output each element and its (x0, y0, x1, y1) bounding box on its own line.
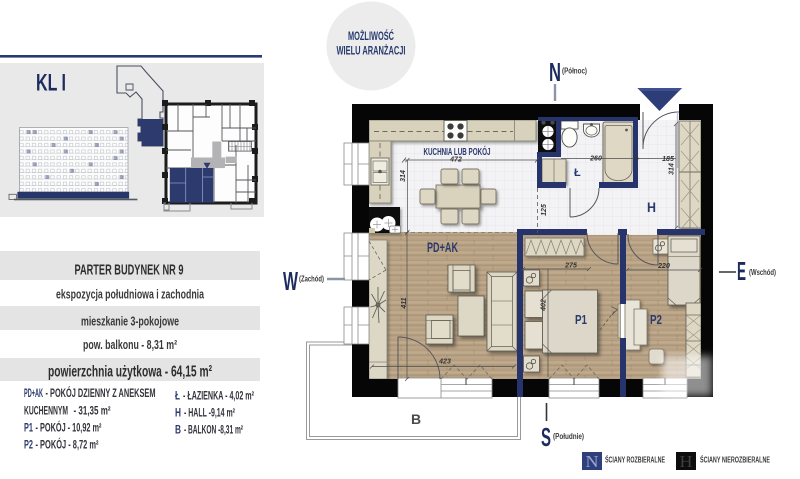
svg-text:WIELU ARANŻACJI: WIELU ARANŻACJI (337, 43, 406, 58)
svg-text:P1- POKÓJ - 10,92 m²: P1- POKÓJ - 10,92 m² (24, 420, 102, 435)
svg-text:B: B (411, 411, 421, 427)
svg-text:B- BALKON -8,31 m²: B- BALKON -8,31 m² (175, 423, 243, 437)
svg-text:(Północ): (Północ) (562, 67, 587, 76)
svg-text:P2- POKÓJ - 8,72 m²: P2- POKÓJ - 8,72 m² (24, 437, 99, 452)
svg-text:402: 402 (541, 299, 548, 312)
svg-text:423: 423 (438, 359, 451, 366)
svg-text:N: N (549, 57, 561, 87)
svg-text:314: 314 (669, 163, 676, 175)
svg-text:H: H (680, 452, 693, 471)
svg-text:125: 125 (541, 204, 548, 216)
svg-text:185: 185 (662, 156, 674, 163)
svg-text:H: H (647, 199, 656, 215)
svg-text:ŚCIANY NIEROZBIERALNE: ŚCIANY NIEROZBIERALNE (700, 456, 770, 465)
svg-text:H- HALL -9,14 m²: H- HALL -9,14 m² (175, 406, 235, 420)
svg-text:PARTER BUDYNEK NR 9: PARTER BUDYNEK NR 9 (75, 262, 184, 279)
svg-text:KUCHENNYM- 31,35 m²: KUCHENNYM- 31,35 m² (24, 404, 111, 418)
svg-text:260: 260 (589, 156, 602, 163)
svg-text:N: N (586, 452, 599, 471)
svg-text:pow. balkonu - 8,31 m²: pow. balkonu - 8,31 m² (83, 337, 177, 352)
svg-text:ekspozycja południowa i zachod: ekspozycja południowa i zachodnia (56, 287, 205, 302)
svg-text:S: S (541, 422, 551, 452)
svg-text:Ł- ŁAZIENKA - 4,02 m²: Ł- ŁAZIENKA - 4,02 m² (175, 389, 254, 403)
svg-text:E: E (737, 256, 746, 286)
svg-text:220: 220 (657, 263, 670, 270)
svg-text:275: 275 (564, 263, 577, 270)
svg-text:KUCHNIA LUB POKÓJ: KUCHNIA LUB POKÓJ (424, 145, 491, 158)
svg-text:P2: P2 (650, 312, 662, 327)
svg-text:mieszkanie 3-pokojowe: mieszkanie 3-pokojowe (81, 314, 179, 329)
svg-text:MOŻLIWOŚĆ: MOŻLIWOŚĆ (348, 28, 394, 43)
svg-text:KL I: KL I (36, 70, 66, 97)
svg-text:ŚCIANY ROZBIERALNE: ŚCIANY ROZBIERALNE (605, 456, 665, 465)
svg-text:314: 314 (400, 170, 407, 182)
svg-text:P1: P1 (575, 312, 587, 327)
svg-text:PD+AK: PD+AK (427, 239, 458, 255)
svg-text:powierzchnia użytkowa - 64,15: powierzchnia użytkowa - 64,15 m² (48, 364, 212, 381)
svg-text:411: 411 (401, 297, 408, 309)
svg-text:Ł: Ł (574, 167, 581, 179)
svg-text:(Południe): (Południe) (553, 432, 584, 441)
svg-text:W: W (283, 266, 298, 296)
svg-text:(Zachód): (Zachód) (299, 275, 324, 284)
svg-text:(Wschód): (Wschód) (749, 268, 776, 277)
